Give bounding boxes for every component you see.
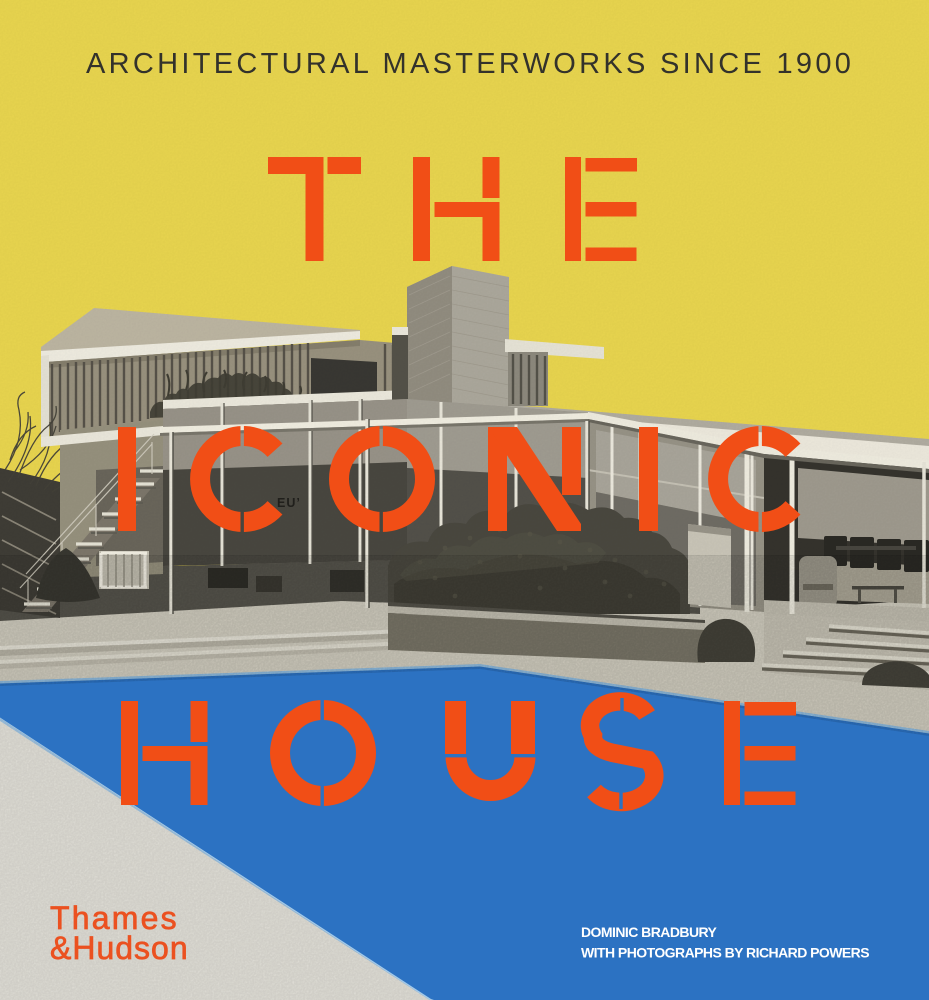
svg-text:WITH PHOTOGRAPHS BY RICHARD PO: WITH PHOTOGRAPHS BY RICHARD POWERS: [581, 945, 869, 961]
svg-text:&Hudson: &Hudson: [50, 930, 189, 966]
svg-text:DOMINIC BRADBURY: DOMINIC BRADBURY: [581, 924, 718, 940]
svg-text:ARCHITECTURAL MASTERWORKS SINC: ARCHITECTURAL MASTERWORKS SINCE 1900: [86, 48, 854, 80]
